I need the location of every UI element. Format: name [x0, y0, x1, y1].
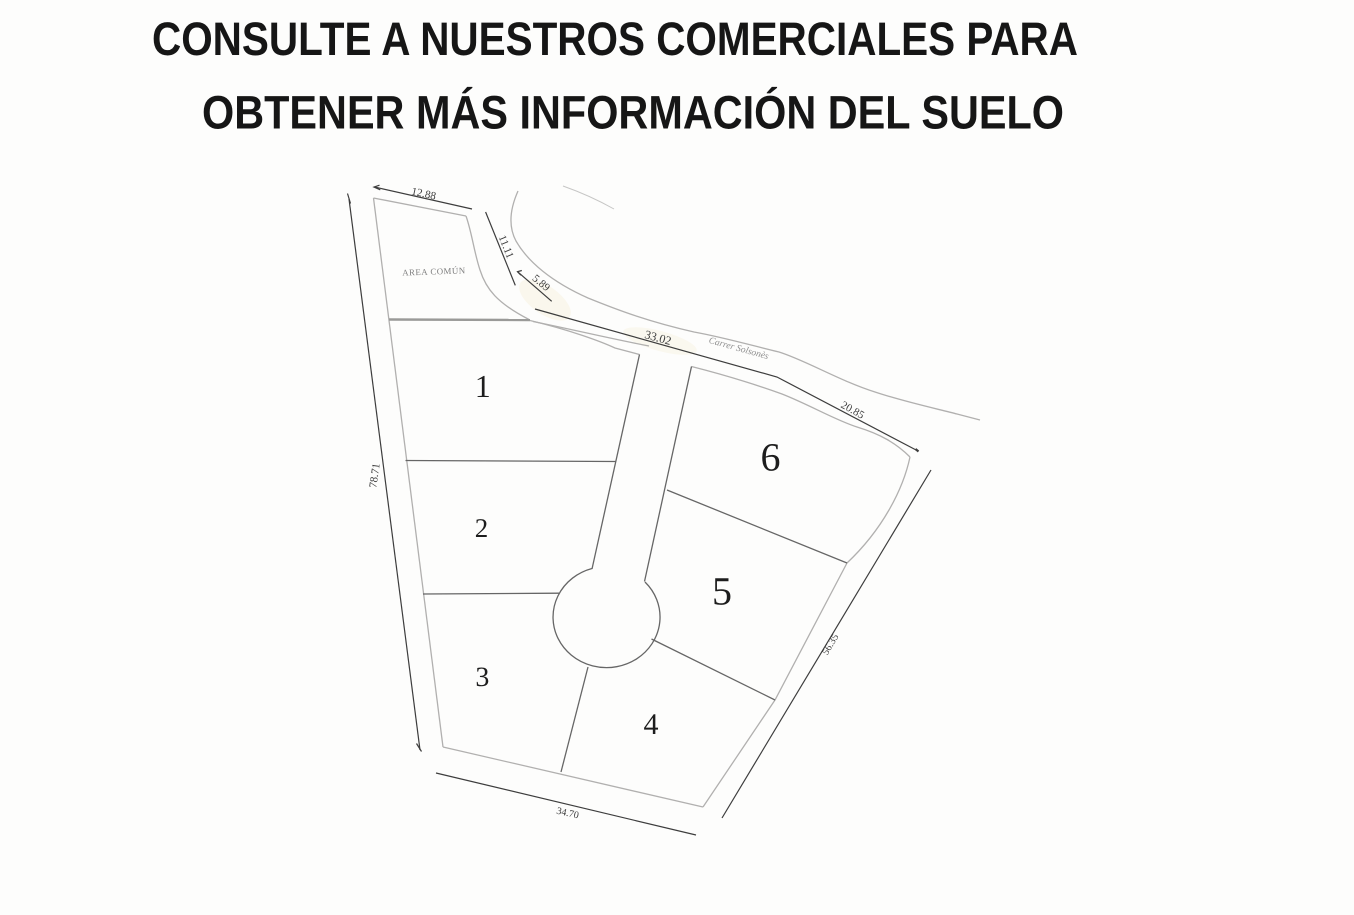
- svg-text:3: 3: [475, 662, 489, 693]
- svg-text:6: 6: [761, 435, 781, 480]
- svg-text:1: 1: [475, 368, 491, 404]
- svg-text:CONSULTE A NUESTROS COMERCIALE: CONSULTE A NUESTROS COMERCIALES PARA: [152, 12, 1078, 65]
- svg-text:OBTENER MÁS INFORMACIÓN DEL SU: OBTENER MÁS INFORMACIÓN DEL SUELO: [202, 86, 1064, 139]
- svg-text:4: 4: [644, 708, 659, 741]
- svg-text:2: 2: [475, 513, 489, 543]
- svg-text:5: 5: [712, 569, 732, 614]
